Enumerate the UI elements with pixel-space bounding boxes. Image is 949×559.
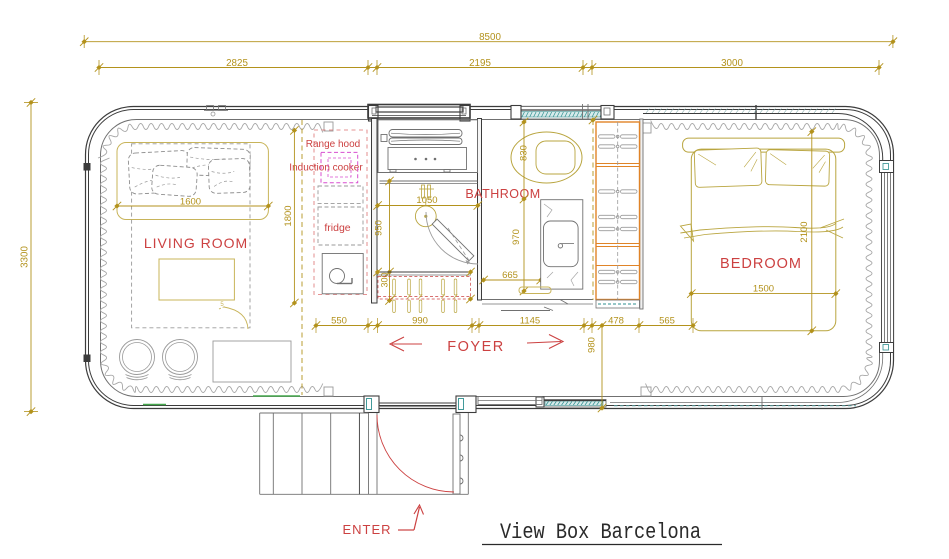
svg-text:565: 565 [659, 316, 675, 327]
svg-text:1145: 1145 [520, 316, 540, 327]
svg-text:950: 950 [374, 220, 385, 236]
svg-text:1800: 1800 [283, 205, 294, 226]
svg-text:970: 970 [511, 229, 522, 245]
svg-text:990: 990 [412, 316, 428, 327]
svg-text:1500: 1500 [753, 284, 774, 295]
svg-text:2825: 2825 [226, 58, 248, 69]
svg-text:478: 478 [608, 316, 624, 327]
svg-text:2195: 2195 [469, 58, 491, 69]
svg-text:Induction cooker: Induction cooker [289, 163, 363, 174]
svg-text:FOYER: FOYER [447, 339, 504, 355]
svg-text:980: 980 [587, 337, 598, 353]
svg-text:1600: 1600 [180, 196, 201, 207]
svg-text:2100: 2100 [799, 221, 810, 242]
svg-text:BEDROOM: BEDROOM [720, 256, 802, 272]
svg-text:Range hood: Range hood [306, 139, 361, 150]
svg-text:fridge: fridge [324, 222, 350, 234]
svg-text:3000: 3000 [721, 58, 743, 69]
svg-text:LIVING ROOM: LIVING ROOM [144, 235, 248, 251]
svg-text:665: 665 [502, 270, 518, 281]
svg-text:830: 830 [519, 145, 530, 161]
svg-text:View Box Barcelona: View Box Barcelona [500, 520, 701, 545]
svg-text:550: 550 [331, 316, 347, 327]
svg-text:ENTER: ENTER [342, 522, 391, 537]
svg-text:1050: 1050 [416, 195, 437, 206]
svg-text:BATHROOM: BATHROOM [465, 187, 540, 201]
svg-text:8500: 8500 [479, 32, 501, 43]
svg-text:3300: 3300 [20, 246, 31, 268]
